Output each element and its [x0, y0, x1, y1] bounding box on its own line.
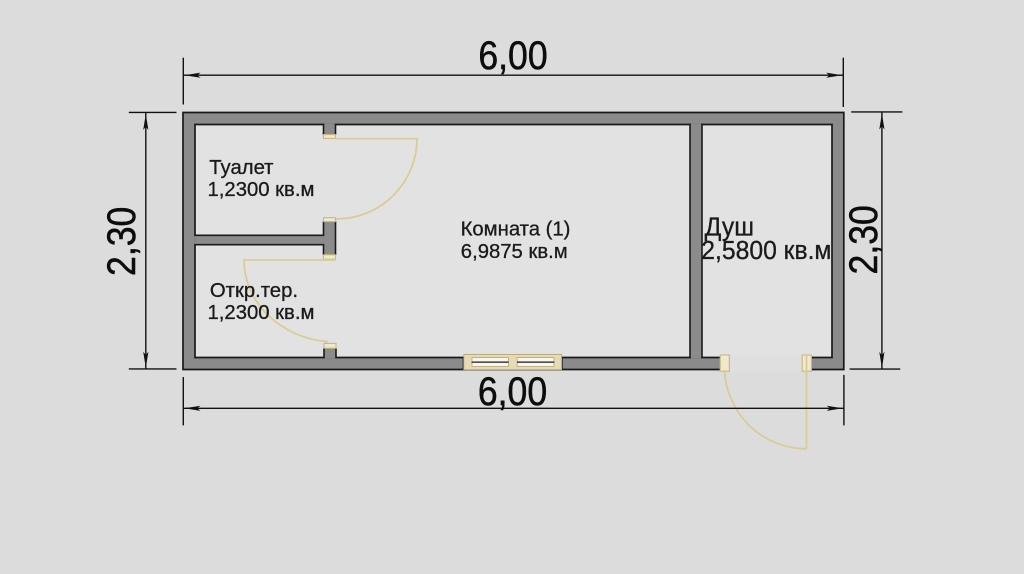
- svg-text:Откр.тер.: Откр.тер.: [210, 280, 298, 302]
- svg-text:2,5800 кв.м: 2,5800 кв.м: [701, 236, 831, 265]
- svg-text:6,00: 6,00: [478, 370, 547, 414]
- svg-text:1,2300 кв.м: 1,2300 кв.м: [208, 302, 315, 324]
- svg-text:2,30: 2,30: [100, 207, 144, 276]
- svg-text:6,00: 6,00: [478, 34, 547, 78]
- svg-text:1,2300 кв.м: 1,2300 кв.м: [208, 179, 315, 201]
- svg-text:Туалет: Туалет: [209, 157, 273, 179]
- svg-text:6,9875 кв.м: 6,9875 кв.м: [461, 241, 568, 263]
- svg-text:Комната (1): Комната (1): [461, 218, 571, 240]
- svg-text:2,30: 2,30: [842, 205, 886, 274]
